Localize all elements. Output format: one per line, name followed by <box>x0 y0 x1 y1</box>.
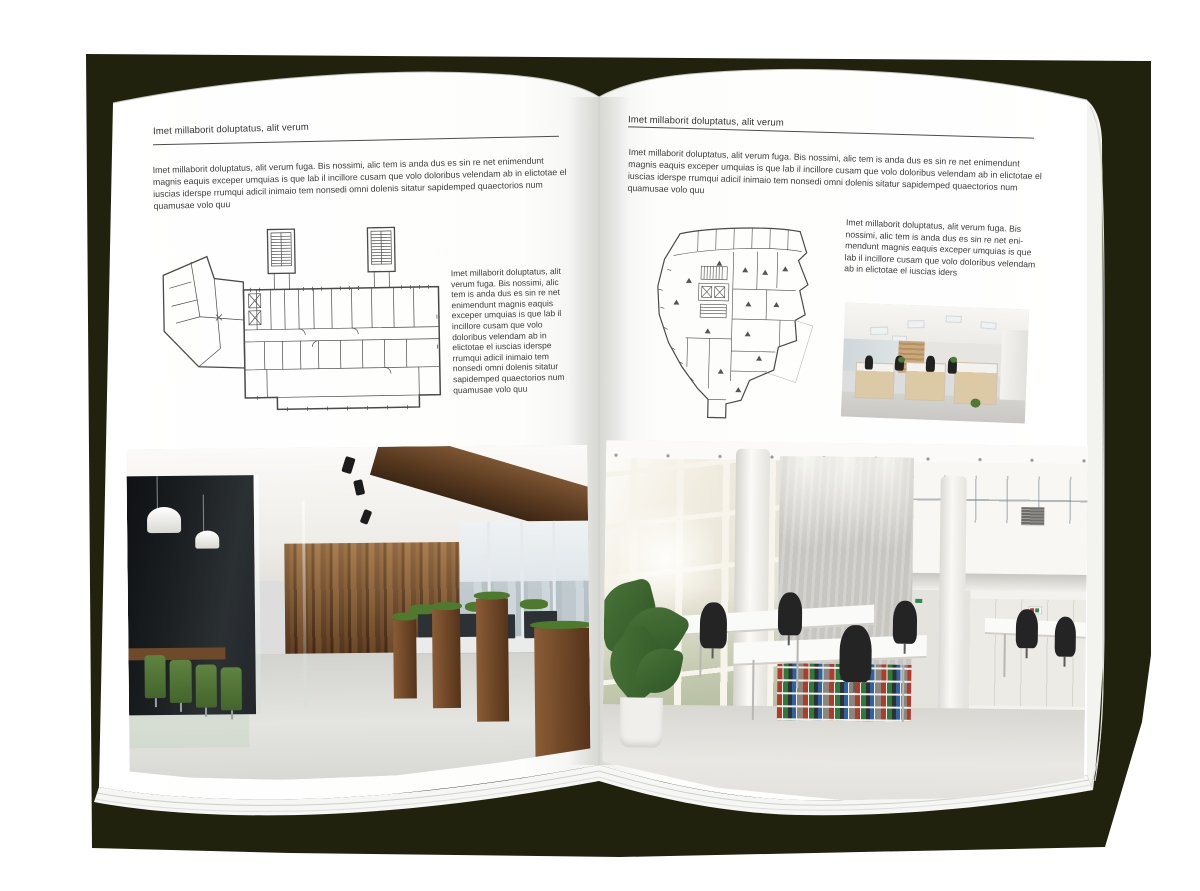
lamp-wire <box>203 494 204 532</box>
ceiling-light <box>946 315 962 323</box>
right-floor-plan <box>646 219 821 423</box>
office-chair <box>925 356 935 372</box>
green-chair <box>221 667 243 710</box>
left-intro-paragraph: Imet millaborit doluptatus, alit verum f… <box>152 154 567 212</box>
wood-planter <box>393 619 417 699</box>
left-plan-caption: Imet millaborit doluptatus, alit verum f… <box>451 266 574 396</box>
left-floor-plan <box>154 224 447 417</box>
office-chair <box>865 356 874 370</box>
meeting-table <box>128 648 225 661</box>
lamp-wire <box>157 476 158 509</box>
pendant-lamp <box>147 506 181 532</box>
green-chair <box>195 664 217 707</box>
wood-planter <box>476 598 510 721</box>
black-office-chair <box>777 592 802 635</box>
office-photo-atrium <box>602 440 1088 803</box>
black-office-chair <box>839 625 871 682</box>
pendant-lamp <box>196 530 220 548</box>
green-chair <box>145 655 167 698</box>
round-column <box>938 476 967 712</box>
desk-cabinet <box>854 362 894 400</box>
black-office-chair <box>700 602 727 649</box>
office-photo-dark-wood <box>126 445 590 782</box>
plant-pot <box>619 697 663 747</box>
black-office-chair <box>1016 609 1038 649</box>
wood-planter <box>432 609 461 709</box>
black-office-chair <box>893 601 918 644</box>
ceiling-light <box>907 320 924 328</box>
desk-grass-divider <box>520 599 548 609</box>
green-chair <box>170 660 192 703</box>
exit-sign <box>915 599 922 603</box>
brochure-mockup: Imet millaborit doluptatus, alit verum I… <box>0 0 1200 891</box>
ceiling-light <box>980 321 997 329</box>
vent-grille <box>1021 507 1044 525</box>
office-photo-small <box>841 303 1029 424</box>
desk-plant <box>950 357 957 363</box>
right-plan-caption: Imet millaborit doluptatus, alit verum f… <box>844 217 1044 283</box>
partition-wall <box>1000 329 1028 401</box>
black-office-chair <box>1054 617 1076 657</box>
ceiling-light <box>870 326 888 335</box>
